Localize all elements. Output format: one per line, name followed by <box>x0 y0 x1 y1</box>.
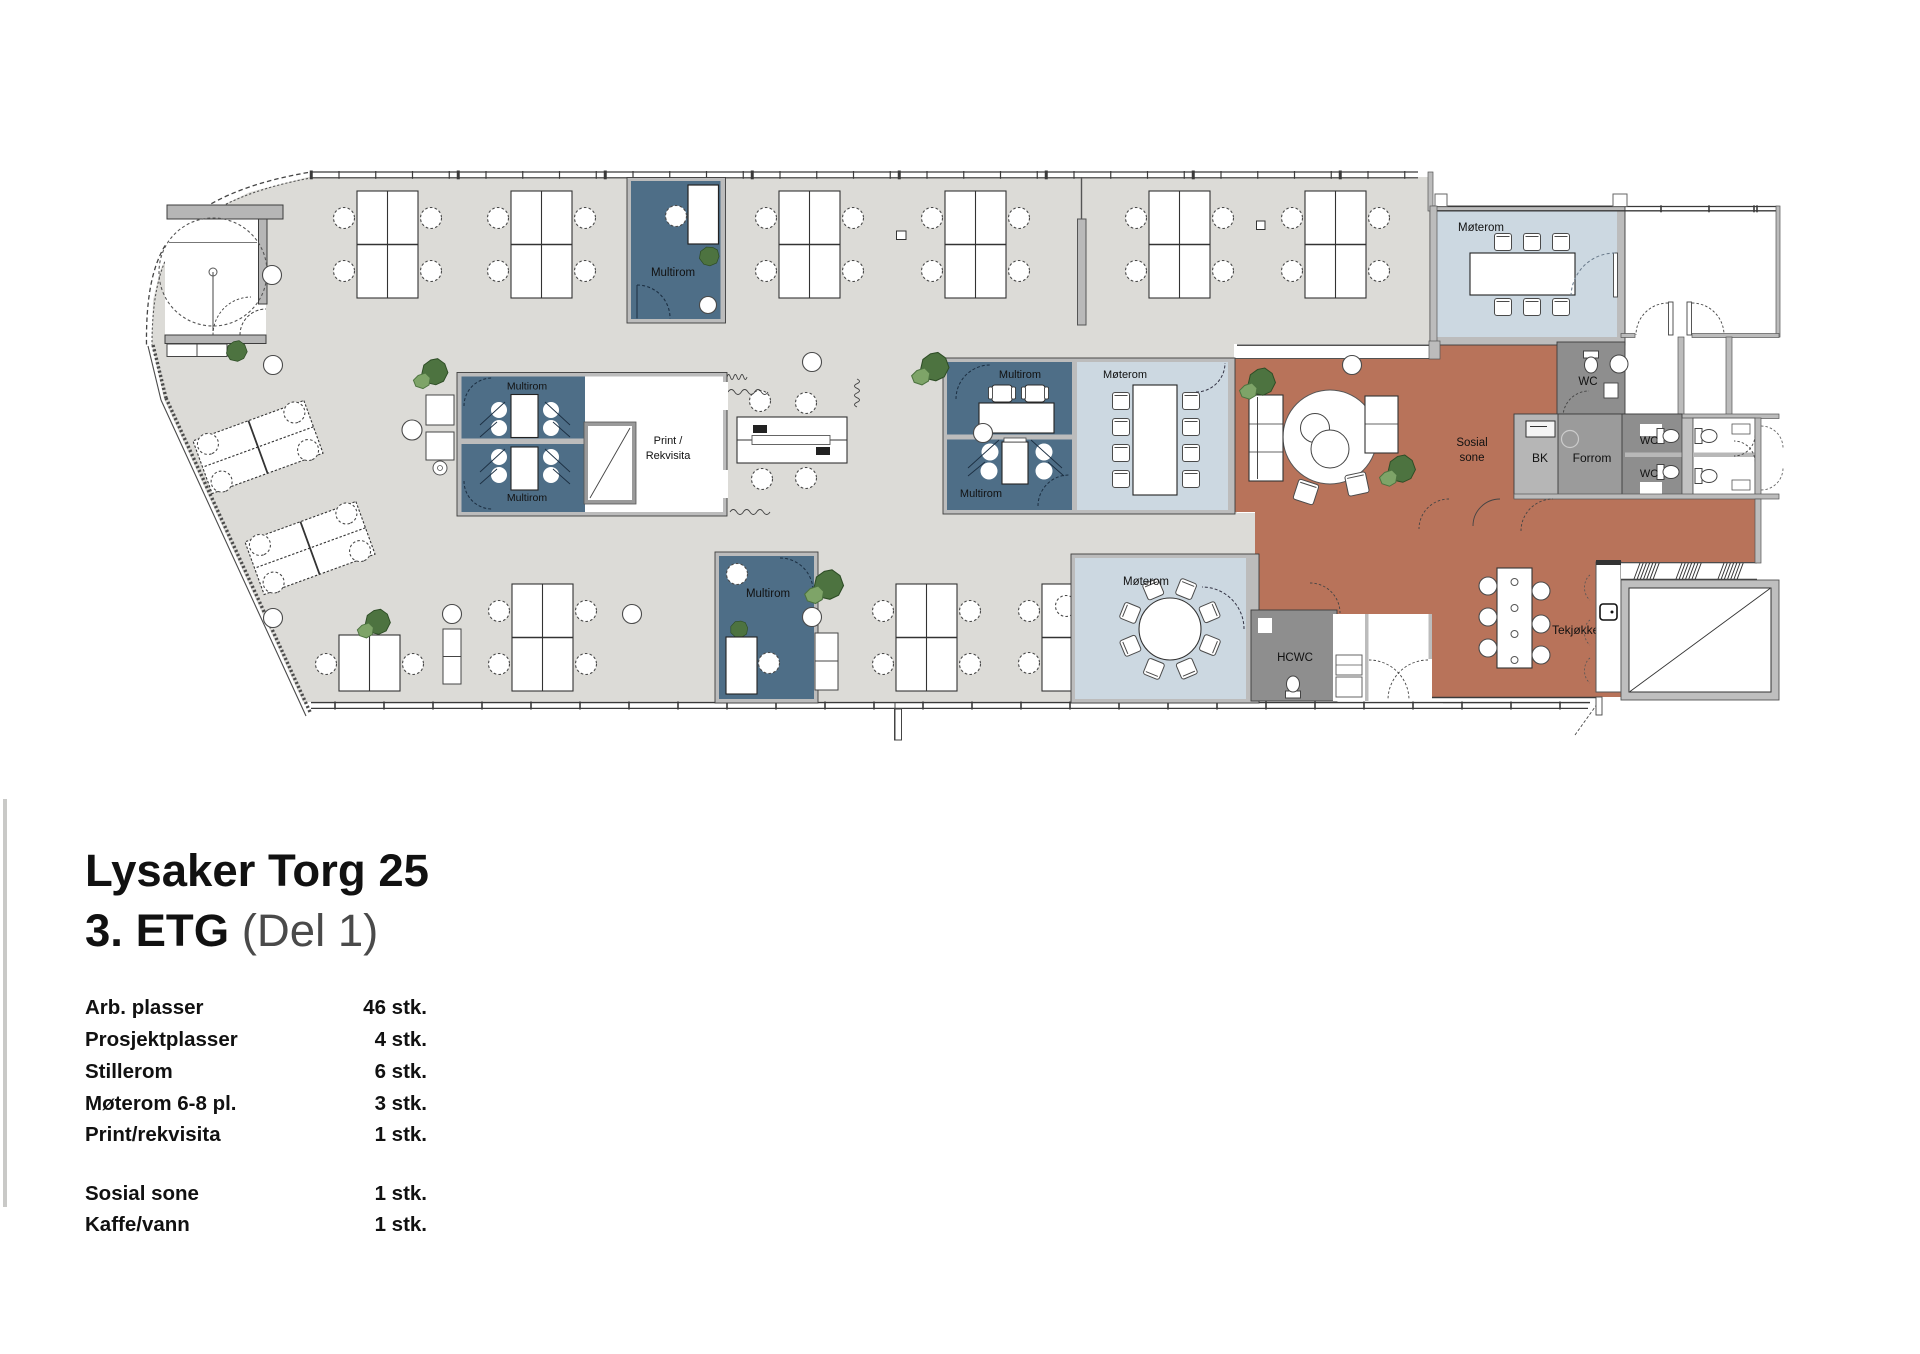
svg-text:6 stk.: 6 stk. <box>375 1060 427 1083</box>
svg-text:Multirom: Multirom <box>960 488 1002 500</box>
svg-text:Print /: Print / <box>654 435 684 447</box>
svg-text:WC: WC <box>1640 468 1658 480</box>
svg-text:Stillerom: Stillerom <box>85 1060 173 1083</box>
svg-text:Møterom 6-8 pl.: Møterom 6-8 pl. <box>85 1092 237 1115</box>
svg-text:Multirom: Multirom <box>999 369 1041 381</box>
svg-text:3. ETG (Del 1): 3. ETG (Del 1) <box>85 905 378 956</box>
svg-text:4 stk.: 4 stk. <box>375 1028 427 1051</box>
svg-text:Forrom: Forrom <box>1573 451 1612 465</box>
svg-text:1 stk.: 1 stk. <box>375 1182 427 1205</box>
svg-text:Kaffe/vann: Kaffe/vann <box>85 1213 190 1236</box>
svg-text:HCWC: HCWC <box>1277 652 1313 664</box>
svg-text:Print/rekvisita: Print/rekvisita <box>85 1123 221 1146</box>
svg-text:Prosjektplasser: Prosjektplasser <box>85 1028 238 1051</box>
svg-text:1 stk.: 1 stk. <box>375 1123 427 1146</box>
svg-text:Rekvisita: Rekvisita <box>646 450 692 462</box>
svg-text:Lysaker Torg 25: Lysaker Torg 25 <box>85 845 429 896</box>
svg-text:Multirom: Multirom <box>746 588 790 600</box>
svg-text:WC: WC <box>1578 376 1597 388</box>
svg-text:3 stk.: 3 stk. <box>375 1092 427 1115</box>
svg-text:Møterom: Møterom <box>1123 576 1169 588</box>
svg-text:WC: WC <box>1640 435 1658 447</box>
svg-text:Arb. plasser: Arb. plasser <box>85 996 204 1019</box>
svg-text:Multirom: Multirom <box>507 492 548 504</box>
svg-text:1 stk.: 1 stk. <box>375 1213 427 1236</box>
svg-text:Sosial: Sosial <box>1456 437 1487 449</box>
svg-text:Møterom: Møterom <box>1103 369 1147 381</box>
svg-text:Multirom: Multirom <box>651 267 695 279</box>
svg-text:BK: BK <box>1532 451 1548 465</box>
svg-text:Sosial sone: Sosial sone <box>85 1182 199 1205</box>
svg-text:sone: sone <box>1460 452 1485 464</box>
svg-text:Multirom: Multirom <box>507 381 548 393</box>
svg-text:Møterom: Møterom <box>1458 222 1504 234</box>
svg-text:46 stk.: 46 stk. <box>363 996 427 1019</box>
